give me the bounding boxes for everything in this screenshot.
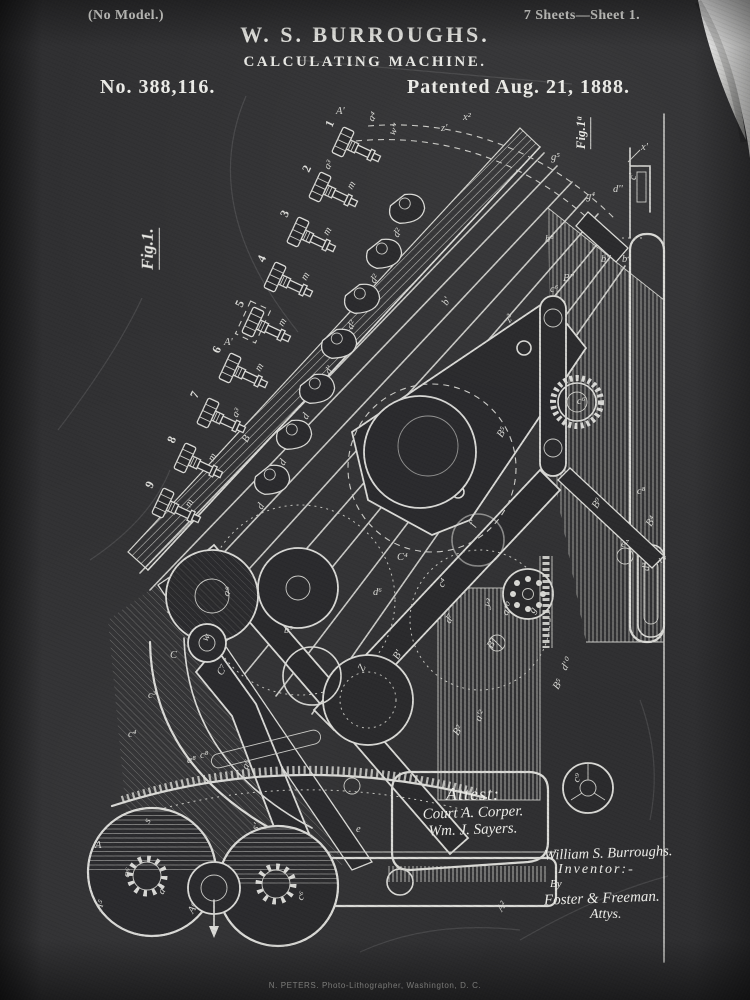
part-label: d² — [391, 226, 405, 240]
part-label: A — [94, 840, 102, 851]
key-number: 9 — [142, 479, 157, 490]
part-label: x' — [640, 142, 649, 153]
part-label: a³ — [322, 158, 336, 172]
machine-figure: 1 2 — [58, 60, 668, 962]
part-label: f' — [467, 518, 479, 529]
key-number: 1 — [322, 118, 337, 129]
part-label: e — [356, 824, 361, 835]
key-number: 5 — [232, 298, 247, 309]
fig1a-part — [622, 148, 650, 238]
patent-poster: 1 2 — [0, 0, 750, 1000]
part-label: m — [345, 179, 359, 191]
part-label: c⁴ — [128, 729, 137, 740]
part-label: B⁵ — [551, 677, 566, 692]
patent-number-row: No. 388,116. Patented Aug. 21, 1888. — [100, 76, 630, 99]
part-label: b'' — [601, 254, 611, 265]
part-label: A' — [335, 106, 345, 117]
part-label: d'⁰ — [559, 655, 575, 672]
page-curl — [690, 0, 750, 160]
part-label: c⁸ — [200, 750, 209, 761]
fig1-label: Fig.1. — [138, 228, 160, 270]
part-label: d³ — [641, 562, 652, 571]
part-label: g⁴ — [586, 191, 595, 202]
lithographer-line: N. PETERS. Photo-Lithographer, Washingto… — [0, 981, 750, 990]
part-label: c⁶ — [550, 284, 559, 295]
key-number: 7 — [187, 389, 202, 400]
part-label: w'' — [387, 121, 403, 137]
inventor-signature-block: William S. Burroughs. Inventor:- By Fost… — [544, 845, 696, 923]
attest-heading: Attest: — [398, 784, 548, 805]
part-label: c⁸ — [637, 486, 646, 497]
part-label: m — [299, 270, 313, 282]
key-number: 6 — [209, 344, 224, 355]
part-label: m — [321, 225, 335, 237]
part-label: x³ — [657, 555, 667, 566]
fig1a-label: Fig.1ᵃ — [573, 117, 591, 149]
part-label: B'' — [563, 273, 575, 284]
key-number: 2 — [299, 163, 314, 174]
part-label: d — [300, 411, 313, 422]
part-label: A² — [495, 899, 510, 914]
attest-block: Attest: Court A. Corper. Wm. J. Sayers. — [398, 784, 548, 839]
part-label: z' — [440, 123, 448, 134]
part-label: d — [255, 501, 268, 512]
part-label: e⁷ — [621, 539, 630, 550]
key-number: 4 — [254, 253, 269, 264]
part-label: b⁴ — [622, 254, 631, 265]
part-label: a⁴ — [366, 110, 380, 124]
patent-date: Patented Aug. 21, 1888. — [407, 76, 630, 99]
part-label: c³ — [148, 690, 157, 701]
inventor-role: Inventor:- — [558, 862, 696, 878]
part-label: a³ — [230, 406, 244, 420]
part-label: C⁴ — [397, 552, 408, 563]
attorneys-title: Attys. — [590, 907, 696, 923]
patent-number: No. 388,116. — [100, 76, 215, 99]
invention-title-heading: CALCULATING MACHINE. — [0, 54, 730, 71]
key-number: 8 — [164, 434, 179, 445]
part-label: c' — [628, 172, 639, 180]
key-number: 3 — [277, 208, 292, 219]
inventor-name-heading: W. S. BURROUGHS. — [0, 22, 730, 48]
part-label: b' — [440, 295, 454, 308]
part-label: b⁸ — [545, 234, 554, 245]
part-label: a⁸ — [187, 755, 196, 766]
part-label: m — [253, 361, 267, 373]
part-label: A' — [223, 337, 233, 348]
part-label: b⁹ — [284, 625, 293, 636]
part-label: d⁶ — [373, 587, 382, 598]
part-label: x² — [462, 112, 472, 123]
part-label: c⁶ — [577, 396, 586, 407]
part-label: C — [170, 650, 178, 661]
part-label: g⁵ — [551, 152, 560, 163]
part-label: d'' — [613, 184, 623, 195]
